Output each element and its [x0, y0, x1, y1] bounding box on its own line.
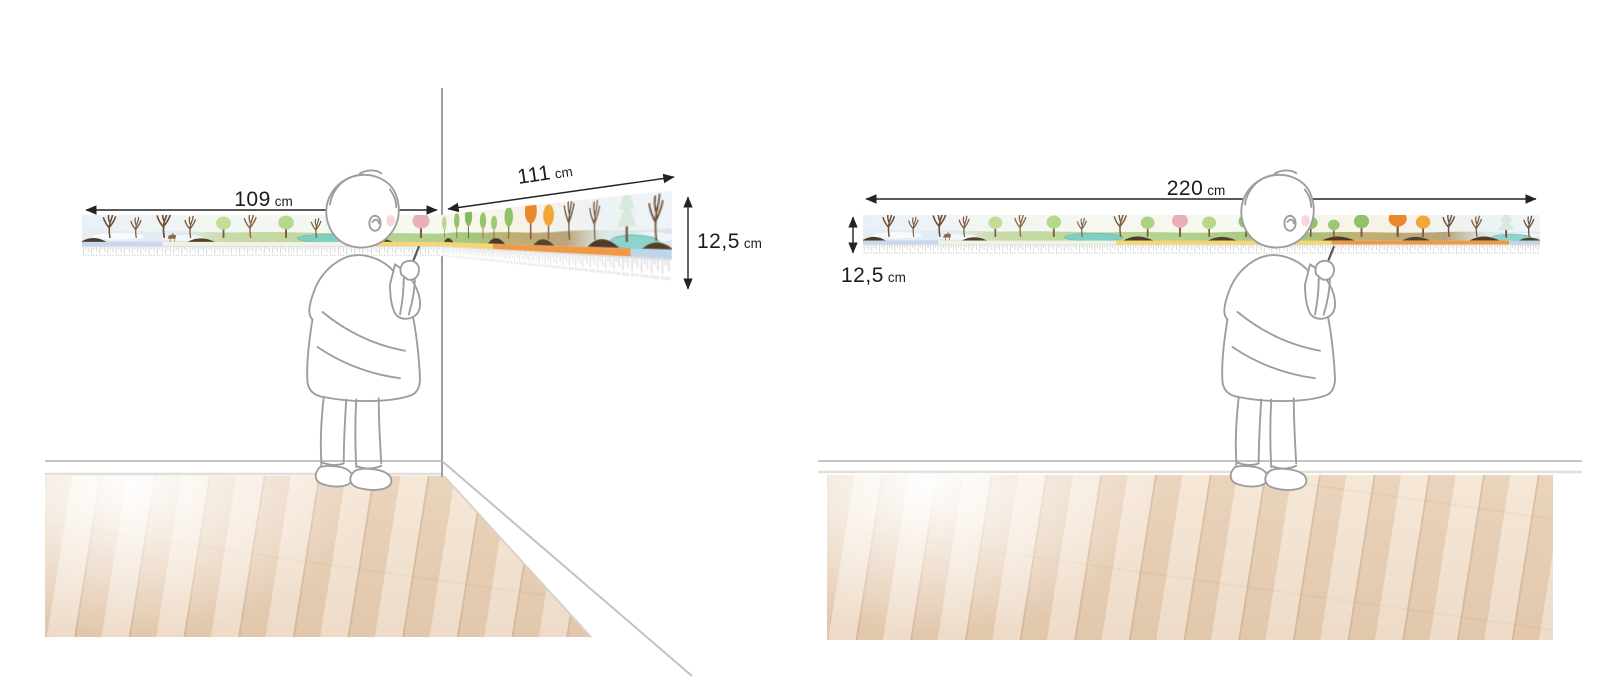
dimension-unit: cm — [554, 164, 574, 181]
dimension-label-height-flat: 12,5cm — [841, 264, 931, 288]
dimension-value: 109 — [234, 188, 271, 211]
dimension-label-109: 109cm — [176, 188, 351, 212]
dimension-unit: cm — [888, 270, 906, 285]
dimension-unit: cm — [275, 194, 293, 209]
diagram-stage: 109cm 111cm 12,5cm 220cm 12,5cm — [0, 0, 1600, 689]
dimension-label-height-corner: 12,5cm — [697, 230, 787, 254]
dimension-unit: cm — [744, 236, 762, 251]
dimension-value: 111 — [516, 161, 552, 189]
dimension-label-220: 220cm — [1116, 177, 1276, 201]
child-flat — [1200, 162, 1370, 507]
dimension-unit: cm — [1207, 183, 1225, 198]
dimension-value: 12,5 — [841, 264, 884, 287]
dimension-value: 12,5 — [697, 230, 740, 253]
dimension-value: 220 — [1167, 177, 1204, 200]
child-corner — [285, 162, 455, 507]
